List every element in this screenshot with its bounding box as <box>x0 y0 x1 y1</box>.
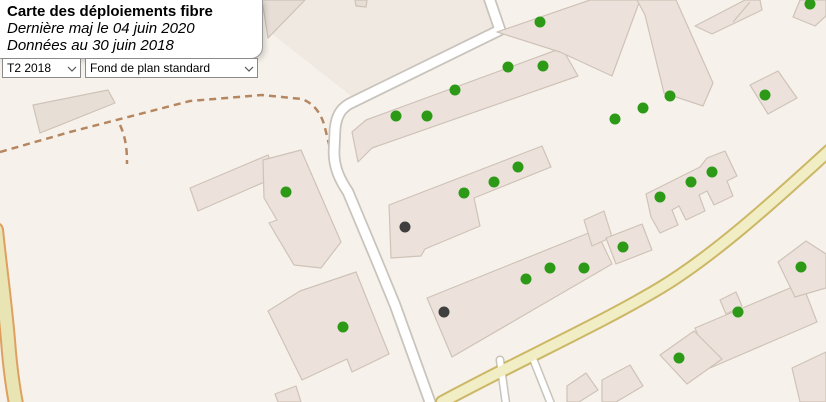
last-update-text: Dernière maj le 04 juin 2020 <box>7 20 256 37</box>
map-controls: T2 2018 Fond de plan standard <box>2 58 258 78</box>
deployment-marker-green[interactable] <box>391 111 402 122</box>
basemap-select-wrapper: Fond de plan standard <box>85 58 258 78</box>
deployment-marker-green[interactable] <box>450 85 461 96</box>
page-title: Carte des déploiements fibre <box>7 3 256 20</box>
data-date-text: Données au 30 juin 2018 <box>7 37 256 54</box>
deployment-marker-green[interactable] <box>707 167 718 178</box>
deployment-marker-green[interactable] <box>796 262 807 273</box>
deployment-marker-green[interactable] <box>521 274 532 285</box>
deployment-marker-green[interactable] <box>638 103 649 114</box>
deployment-marker-green[interactable] <box>579 263 590 274</box>
deployment-marker-green[interactable] <box>733 307 744 318</box>
deployment-marker-green[interactable] <box>503 62 514 73</box>
deployment-marker-green[interactable] <box>513 162 524 173</box>
deployment-marker-green[interactable] <box>545 263 556 274</box>
quarter-select-wrapper: T2 2018 <box>2 58 81 78</box>
deployment-marker-green[interactable] <box>489 177 500 188</box>
deployment-marker-green[interactable] <box>686 177 697 188</box>
deployment-marker-green[interactable] <box>281 187 292 198</box>
deployment-marker-green[interactable] <box>618 242 629 253</box>
deployment-marker-green[interactable] <box>338 322 349 333</box>
deployment-marker-green[interactable] <box>674 353 685 364</box>
deployment-marker-green[interactable] <box>459 188 470 199</box>
basemap-select[interactable]: Fond de plan standard <box>86 59 257 77</box>
deployment-marker-dark[interactable] <box>439 307 450 318</box>
info-panel: Carte des déploiements fibre Dernière ma… <box>0 0 263 59</box>
deployment-marker-green[interactable] <box>538 61 549 72</box>
quarter-select[interactable]: T2 2018 <box>3 59 80 77</box>
deployment-marker-dark[interactable] <box>400 222 411 233</box>
deployment-marker-green[interactable] <box>665 91 676 102</box>
deployment-marker-green[interactable] <box>610 114 621 125</box>
deployment-marker-green[interactable] <box>655 192 666 203</box>
deployment-marker-green[interactable] <box>760 90 771 101</box>
deployment-marker-green[interactable] <box>422 111 433 122</box>
deployment-marker-green[interactable] <box>535 17 546 28</box>
building <box>355 0 367 7</box>
